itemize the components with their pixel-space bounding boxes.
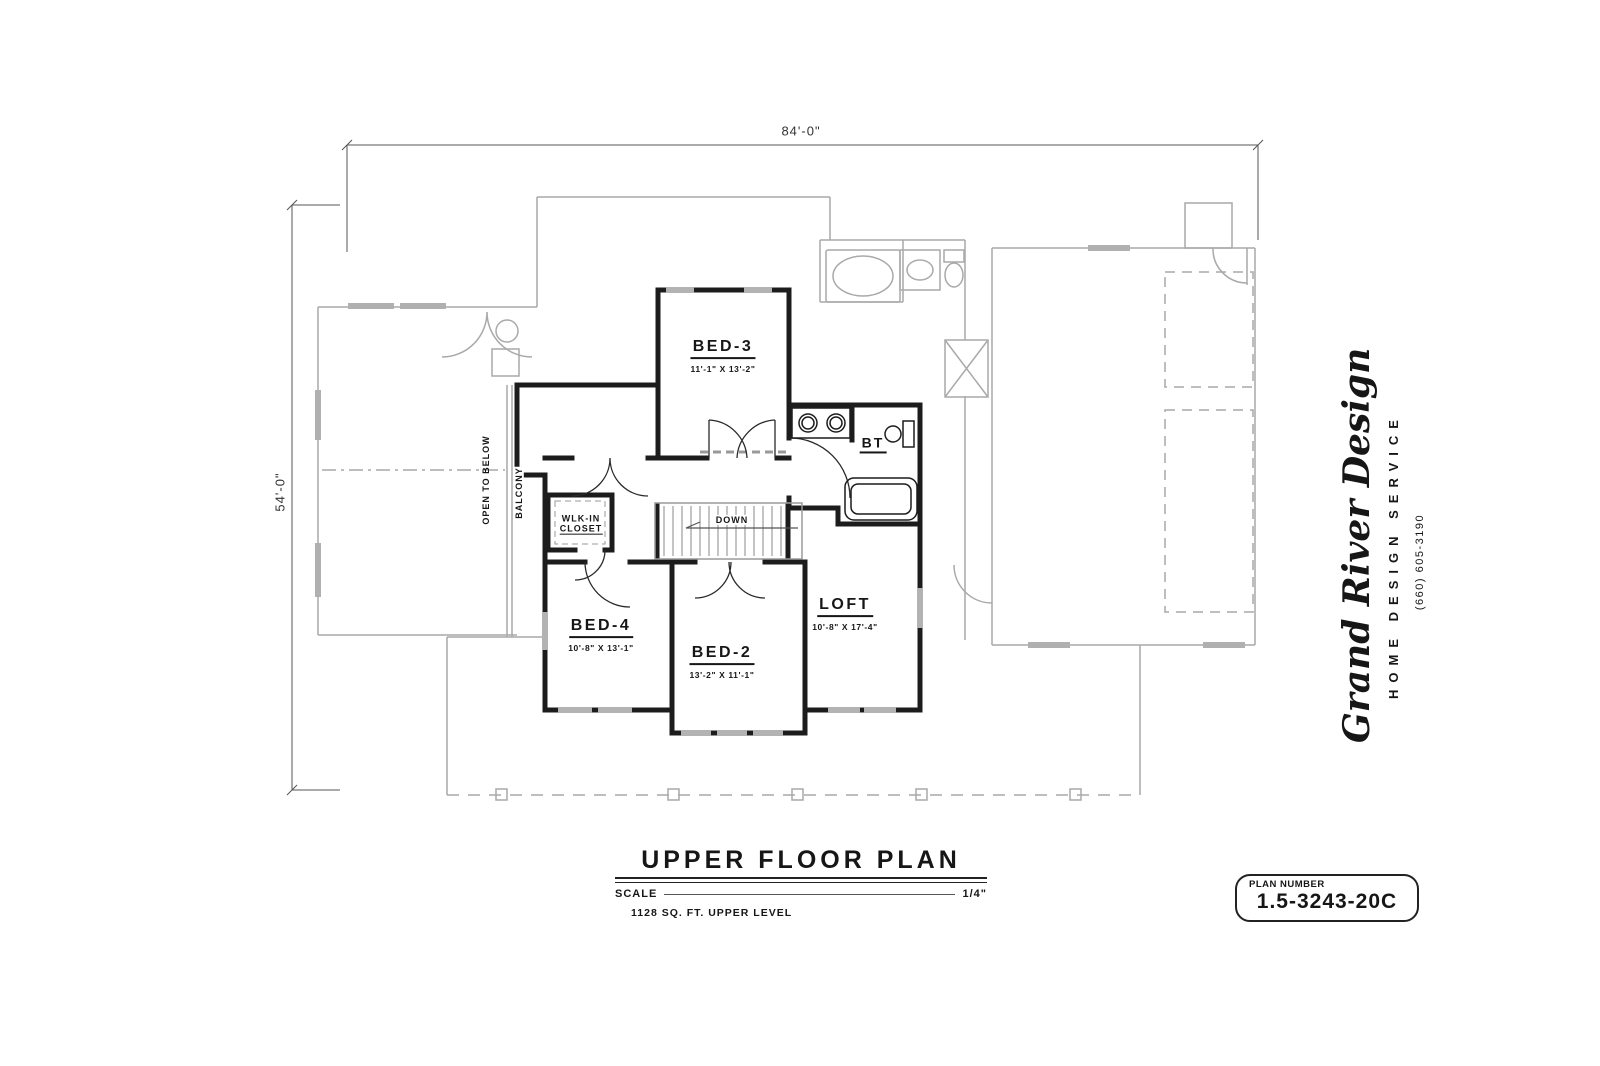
- scale-rule: [664, 894, 955, 895]
- toilet-icon: [885, 421, 914, 447]
- first-floor-windows: [315, 245, 1245, 648]
- closet-line1: WLK-IN: [562, 514, 601, 524]
- overall-width-dimension: 84'-0": [781, 125, 820, 140]
- shower-icon: [945, 340, 988, 397]
- loft-size: 10'-8" X 17'-4": [812, 623, 878, 633]
- plan-number-value: 1.5-3243-20C: [1237, 890, 1417, 914]
- company-logo-text: Grand River Design: [1336, 363, 1380, 743]
- room-label-bath: BT: [860, 434, 887, 453]
- dimension-lines: [287, 140, 1263, 795]
- room-label-bed4: BED-4 10'-8" X 13'-1": [568, 617, 634, 657]
- bed3-size: 11'-1" X 13'-2": [690, 365, 755, 375]
- sink-icon: [900, 250, 940, 290]
- overall-height-dimension: 54'-0": [274, 472, 289, 511]
- stairs-down-label: DOWN: [713, 515, 752, 525]
- room-label-bed2: BED-2 13'-2" X 11'-1": [689, 644, 754, 684]
- plan-number-label: PLAN NUMBER: [1249, 879, 1417, 890]
- bed4-size: 10'-8" X 13'-1": [568, 644, 634, 654]
- closet-line2: CLOSET: [560, 524, 603, 535]
- double-vanity-icon: [792, 408, 850, 438]
- garage-door-swing: [1213, 248, 1247, 283]
- title-block: UPPER FLOOR PLAN SCALE 1/4" 1128 SQ. FT.…: [615, 846, 987, 919]
- area-note: 1128 SQ. FT. UPPER LEVEL: [631, 907, 987, 919]
- company-tagline: HOME DESIGN SERVICE: [1386, 391, 1402, 721]
- open-to-below-label: OPEN TO BELOW: [481, 435, 491, 524]
- plan-number-box: PLAN NUMBER 1.5-3243-20C: [1235, 874, 1419, 922]
- bed3-name: BED-3: [691, 338, 756, 359]
- loft-name: LOFT: [817, 596, 873, 617]
- bed2-name: BED-2: [690, 644, 755, 665]
- company-phone: (660) 605-3190: [1414, 502, 1428, 622]
- sheet-title: UPPER FLOOR PLAN: [615, 846, 987, 875]
- toilet-icon: [944, 250, 964, 287]
- floor-plan-sheet: BED-3 11'-1" X 13'-2" BED-4 10'-8" X 13'…: [0, 0, 1600, 1066]
- stairs: [655, 503, 802, 559]
- title-underline: [615, 877, 987, 883]
- scale-label: SCALE: [615, 888, 657, 900]
- room-label-closet: WLK-IN CLOSET: [560, 514, 603, 535]
- room-label-bed3: BED-3 11'-1" X 13'-2": [690, 338, 755, 378]
- bath-name: BT: [860, 434, 887, 453]
- tub-icon: [826, 250, 900, 302]
- scale-value: 1/4": [962, 888, 987, 900]
- scale-row: SCALE 1/4": [615, 888, 987, 900]
- tub-icon: [845, 478, 917, 520]
- hall-door-swing: [954, 565, 992, 603]
- bed2-size: 13'-2" X 11'-1": [689, 671, 754, 681]
- room-label-loft: LOFT 10'-8" X 17'-4": [812, 596, 878, 636]
- bed4-name: BED-4: [569, 617, 634, 638]
- balcony-label: BALCONY: [514, 467, 524, 519]
